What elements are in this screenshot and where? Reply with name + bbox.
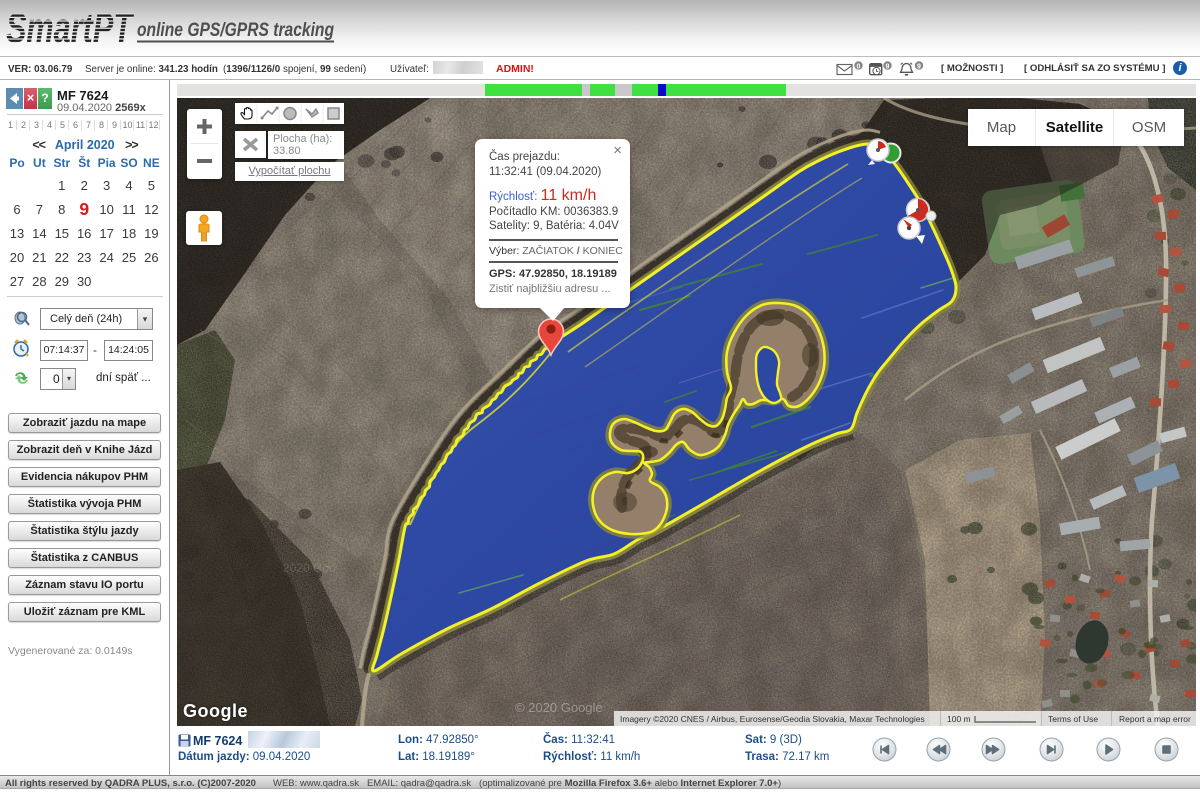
svg-text:© 2020 Google: © 2020 Google [515,700,603,715]
svg-text:0: 0 [857,63,861,70]
svg-text:2020 Goo: 2020 Goo [283,561,336,575]
svg-text:online GPS/GPRS tracking: online GPS/GPRS tracking [137,20,334,41]
svg-text:9: 9 [917,63,921,70]
svg-text:9: 9 [886,63,890,70]
svg-text:SmartPT: SmartPT [6,4,134,51]
